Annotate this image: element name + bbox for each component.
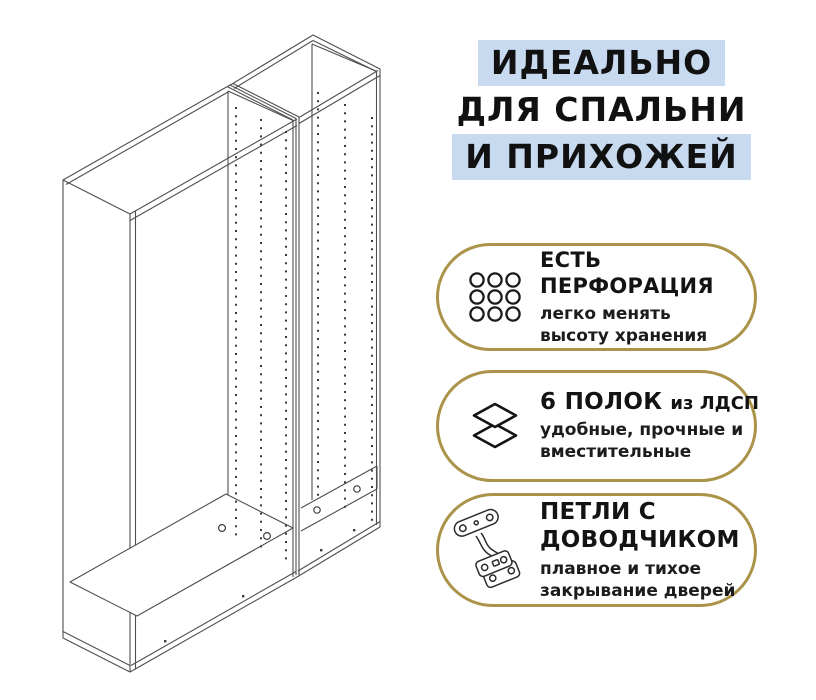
feature-subtitle: закрывание дверей bbox=[540, 580, 740, 602]
feature-capsule-perforation: ЕСТЬ ПЕРФОРАЦИЯ легко менять высоту хран… bbox=[436, 243, 757, 351]
feature-text-shelves: 6 ПОЛОК из ЛДСП удобные, прочные и вмест… bbox=[540, 389, 759, 463]
feature-subtitle: вместительные bbox=[540, 441, 759, 463]
feature-subtitle: высоту хранения bbox=[540, 325, 714, 347]
feature-title: ДОВОДЧИКОМ bbox=[540, 526, 740, 554]
headline-line-2: ДЛЯ СПАЛЬНИ bbox=[441, 87, 762, 133]
perforation-grid-icon bbox=[463, 272, 527, 322]
headline-line-3: И ПРИХОЖЕЙ bbox=[441, 134, 762, 180]
feature-capsule-shelves: 6 ПОЛОК из ЛДСП удобные, прочные и вмест… bbox=[436, 370, 757, 482]
feature-text-hinges: ПЕТЛИ С ДОВОДЧИКОМ плавное и тихое закры… bbox=[540, 498, 740, 602]
wardrobe-frames bbox=[63, 35, 380, 672]
feature-title: ЕСТЬ bbox=[540, 247, 714, 273]
headline-text: ДЛЯ СПАЛЬНИ bbox=[444, 87, 760, 133]
feature-capsule-hinges: ПЕТЛИ С ДОВОДЧИКОМ плавное и тихое закры… bbox=[436, 493, 757, 607]
feature-title: ПЕТЛИ С bbox=[540, 498, 740, 526]
feature-title-main: 6 ПОЛОК bbox=[540, 389, 662, 415]
headline-line-1: ИДЕАЛЬНО bbox=[441, 40, 762, 86]
feature-subtitle: легко менять bbox=[540, 303, 714, 325]
product-infographic: ИДЕАЛЬНО ДЛЯ СПАЛЬНИ И ПРИХОЖЕЙ ЕСТЬ ПЕР… bbox=[0, 0, 816, 700]
door-hinge-icon bbox=[453, 506, 527, 594]
headline-text-highlighted: И ПРИХОЖЕЙ bbox=[452, 134, 751, 180]
headline: ИДЕАЛЬНО ДЛЯ СПАЛЬНИ И ПРИХОЖЕЙ bbox=[441, 40, 762, 181]
headline-text-highlighted: ИДЕАЛЬНО bbox=[478, 40, 725, 86]
feature-subtitle: плавное и тихое bbox=[540, 558, 740, 580]
feature-title: 6 ПОЛОК из ЛДСП bbox=[540, 389, 759, 415]
shelves-layers-icon bbox=[463, 401, 527, 451]
feature-title: ПЕРФОРАЦИЯ bbox=[540, 273, 714, 299]
feature-title-suffix: из ЛДСП bbox=[670, 393, 759, 414]
feature-subtitle: удобные, прочные и bbox=[540, 419, 759, 441]
feature-text-perforation: ЕСТЬ ПЕРФОРАЦИЯ легко менять высоту хран… bbox=[540, 247, 714, 347]
